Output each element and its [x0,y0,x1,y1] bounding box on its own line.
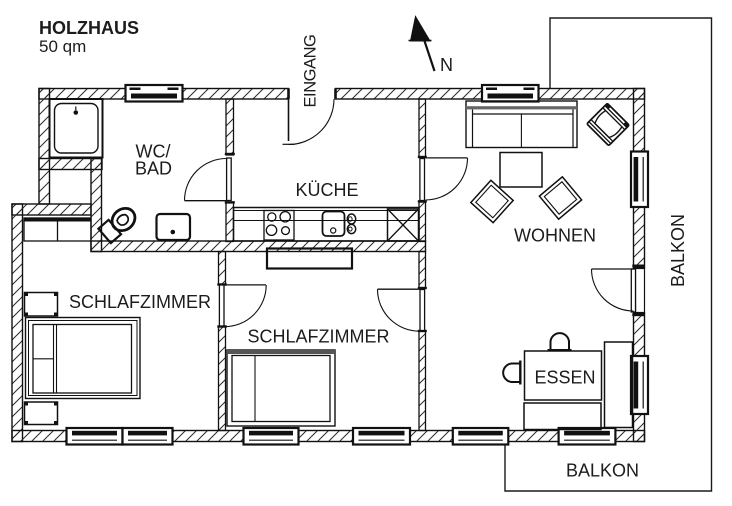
svg-text:WOHNEN: WOHNEN [514,226,596,246]
svg-text:SCHLAFZIMMER: SCHLAFZIMMER [69,292,211,312]
svg-text:BAD: BAD [135,159,172,179]
svg-text:N: N [440,55,453,75]
svg-text:50 qm: 50 qm [39,37,86,56]
svg-text:BALKON: BALKON [668,214,688,287]
svg-text:ESSEN: ESSEN [535,368,596,388]
svg-text:EINGANG: EINGANG [302,35,320,108]
svg-text:KÜCHE: KÜCHE [296,180,359,200]
svg-text:BALKON: BALKON [566,461,639,481]
svg-text:SCHLAFZIMMER: SCHLAFZIMMER [248,327,390,347]
svg-text:HOLZHAUS: HOLZHAUS [39,18,139,38]
